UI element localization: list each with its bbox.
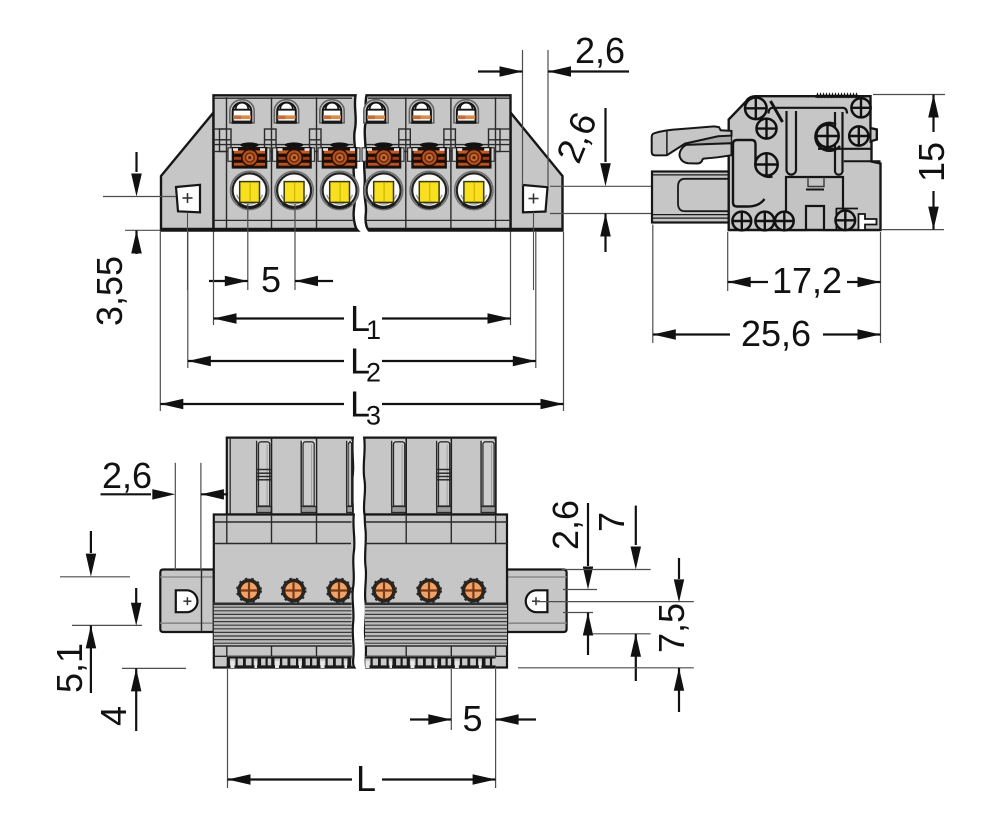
svg-text:7,5: 7,5 [651, 603, 692, 653]
svg-text:15: 15 [911, 142, 952, 182]
svg-text:2,6: 2,6 [545, 500, 586, 550]
svg-text:7: 7 [591, 512, 632, 532]
svg-text:L: L [356, 758, 376, 799]
svg-text:2,6: 2,6 [102, 455, 152, 496]
svg-text:17,2: 17,2 [772, 260, 842, 301]
svg-text:5,1: 5,1 [49, 643, 90, 693]
svg-text:25,6: 25,6 [741, 313, 811, 354]
svg-text:3,55: 3,55 [89, 256, 130, 326]
svg-text:3: 3 [366, 401, 381, 431]
svg-text:5: 5 [261, 259, 281, 300]
svg-text:5: 5 [462, 698, 482, 739]
svg-text:2,6: 2,6 [575, 30, 625, 71]
svg-text:4: 4 [93, 706, 134, 726]
